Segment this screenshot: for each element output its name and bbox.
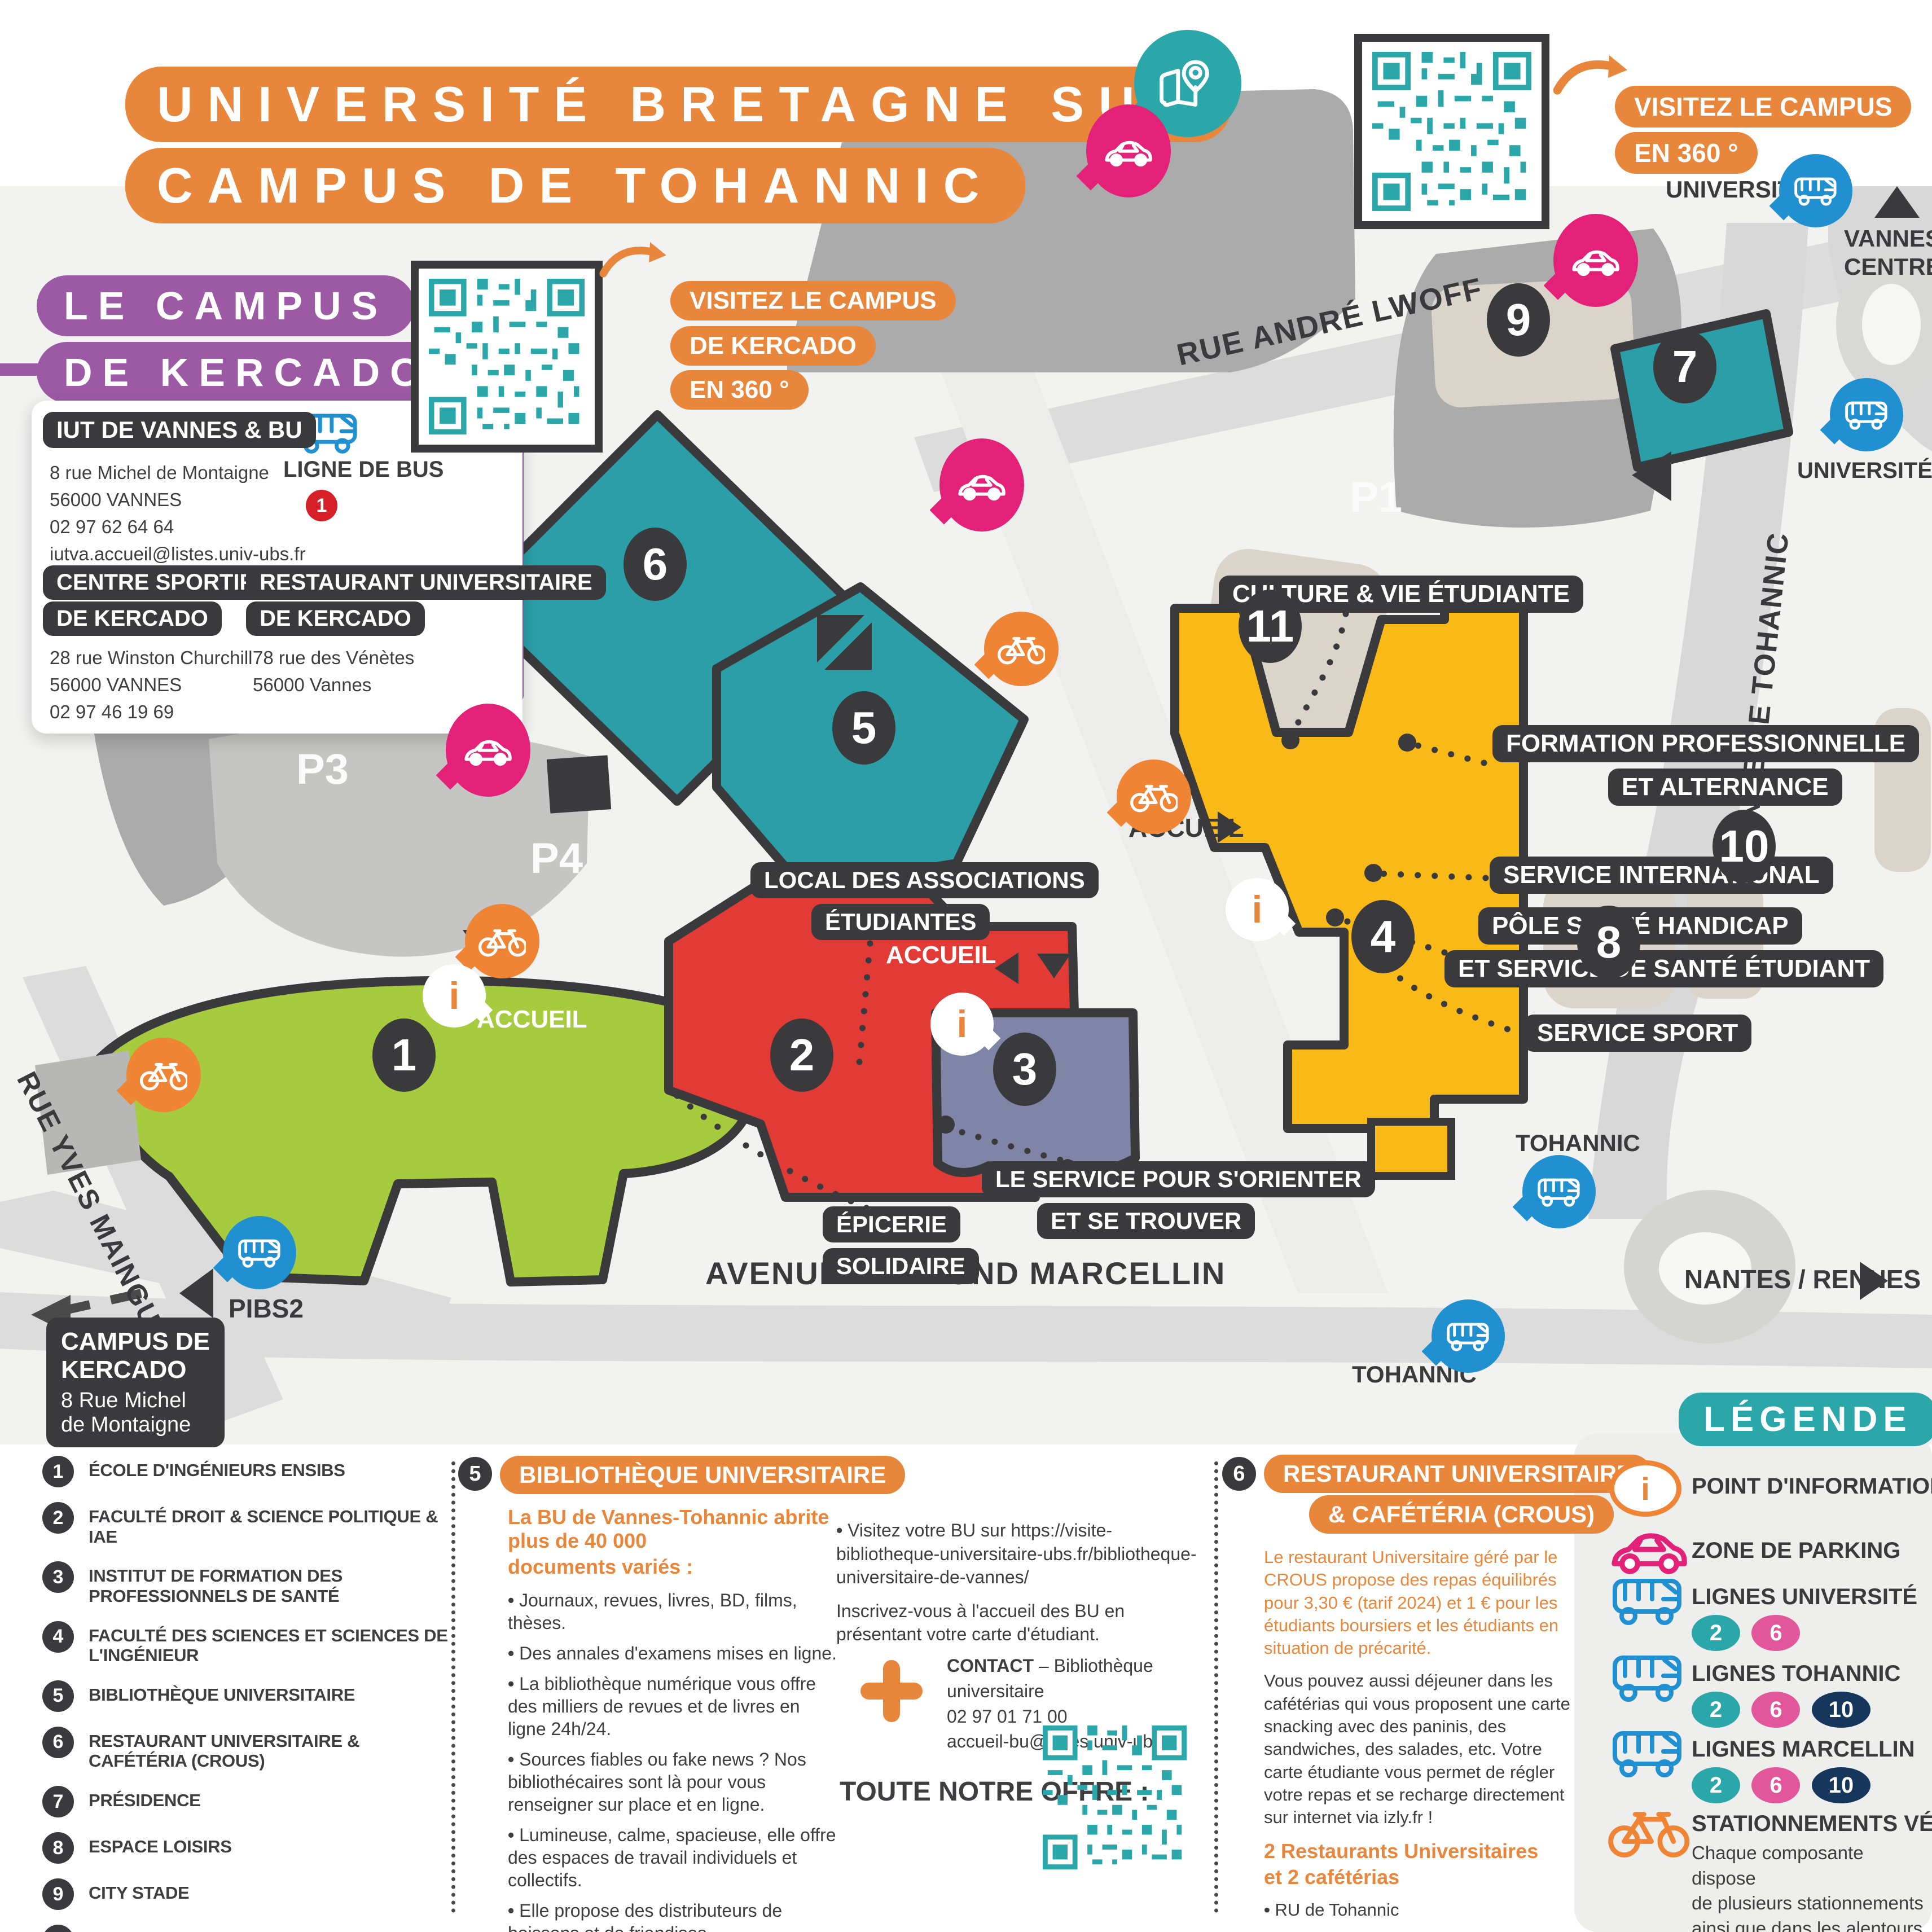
page-title-line2: CAMPUS DE TOHANNIC: [125, 148, 1025, 223]
ru-p1: Le restaurant Universitaire géré par le …: [1264, 1546, 1571, 1659]
parking-p3-label: P3: [296, 745, 349, 794]
bus-line-1-badge: 1: [306, 490, 337, 521]
bike-icon: [478, 925, 526, 958]
bus-icon: [238, 1237, 282, 1268]
bike-parking-bubble-2: [1117, 759, 1191, 834]
sport-center-address: 28 rue Winston Churchill 56000 VANNES 02…: [50, 644, 253, 726]
callout-epicerie-2: SOLIDAIRE: [823, 1248, 979, 1284]
callout-epicerie-1: ÉPICERIE: [823, 1206, 960, 1242]
bu-info-column: • Visitez votre BU sur https://visite-bi…: [836, 1519, 1197, 1657]
triangle-left-icon: [995, 952, 1018, 984]
qr-code-bu-offer: [1043, 1725, 1187, 1869]
callout-local-assoc-2: ÉTUDIANTES: [811, 904, 990, 940]
ru-p2: Vous pouvez aussi déjeuner dans les café…: [1264, 1670, 1571, 1829]
list-item: 9CITY STADE: [42, 1878, 460, 1910]
legend-bus-marc-label: LIGNES MARCELLIN: [1692, 1737, 1915, 1762]
bus-icon: [1446, 1321, 1490, 1351]
arrow-icon: [598, 237, 671, 288]
ru-kercado-badge-2: DE KERCADO: [246, 601, 425, 636]
bus-icon: [1611, 1575, 1684, 1625]
car-icon: [462, 734, 514, 767]
parking-p1-label: P1: [1350, 473, 1402, 522]
list-item: 4FACULTÉ DES SCIENCES ET SCIENCES DE L'I…: [42, 1621, 460, 1666]
list-item: 5BIBLIOTHÈQUE UNIVERSITAIRE: [42, 1680, 460, 1712]
kercado-visit-1: VISITEZ LE CAMPUS: [670, 281, 956, 320]
building-2-number: 2: [770, 1018, 833, 1092]
callout-orienter-1: LE SERVICE POUR S'ORIENTER: [982, 1161, 1375, 1197]
info-point-b2: i: [930, 993, 994, 1056]
triangle-right-icon: [1218, 811, 1241, 843]
bike-parking-bubble-1: [984, 612, 1059, 686]
triangle-down-icon: [1037, 954, 1071, 978]
qr-code-campus-360: [1354, 34, 1549, 229]
legend-bus-toh-label: LIGNES TOHANNIC: [1692, 1661, 1900, 1687]
kercado-visit-3: EN 360 °: [670, 370, 809, 410]
parking-p4-label: P4: [530, 834, 583, 883]
list-item: 3INSTITUT DE FORMATION DES PROFESSIONNEL…: [42, 1561, 460, 1606]
callout-international: SERVICE INTERNATIONAL: [1490, 857, 1833, 894]
parking-bubble-p3: [446, 704, 530, 797]
bus-icon: [1611, 1728, 1684, 1777]
bus-stop-bubble-universite-right: [1830, 378, 1903, 451]
accueil-label-b1: ACCUEIL: [477, 1005, 587, 1034]
legend-info-icon: i: [1609, 1460, 1681, 1517]
campus-kercado-box: CAMPUS DE KERCADO 8 Rue Michel de Montai…: [46, 1318, 225, 1447]
bu-register: Inscrivez-vous à l'accueil des BU en pré…: [836, 1600, 1197, 1646]
iut-address: 8 rue Michel de Montaigne 56000 VANNES 0…: [50, 459, 306, 567]
bu-section-body: La BU de Vannes-Tohannic abrite plus de …: [508, 1505, 841, 1932]
legend-velos-label: STATIONNEMENTS VÉLOS: [1692, 1811, 1932, 1837]
bike-icon: [140, 1059, 187, 1091]
legend-velos-note: Chaque composante dispose de plusieurs s…: [1692, 1841, 1932, 1932]
visit-360-label-1: VISITEZ LE CAMPUS: [1615, 86, 1911, 128]
campus-map-poster: UNIVERSITÉ BRETAGNE SUD CAMPUS DE TOHANN…: [0, 0, 1932, 1932]
stop-pibs2: PIBS2: [229, 1293, 304, 1324]
callout-orienter-2: ET SE TROUVER: [1037, 1203, 1255, 1239]
parking-bubble-center: [939, 438, 1024, 532]
ru-kercado-badge-1: RESTAURANT UNIVERSITAIRE: [246, 565, 606, 600]
bus-stop-bubble-tohannic-1: [1522, 1155, 1596, 1228]
page-title-line1: UNIVERSITÉ BRETAGNE SUD: [125, 67, 1231, 142]
building-5-number: 5: [832, 691, 895, 765]
bike-icon: [1130, 780, 1178, 813]
car-icon: [956, 469, 1008, 502]
kercado-visit-2: DE KERCADO: [670, 326, 876, 366]
callout-local-assoc-1: LOCAL DES ASSOCIATIONS: [750, 862, 1099, 898]
car-icon: [1103, 135, 1154, 168]
info-point-b1: i: [423, 964, 486, 1028]
bu-bullets: Journaux, revues, livres, BD, films, thè…: [508, 1589, 841, 1932]
bu-section-number: 5: [458, 1457, 492, 1491]
legend-title: LÉGENDE: [1679, 1393, 1932, 1446]
building-4-number: 4: [1351, 900, 1415, 973]
list-item: 7PRÉSIDENCE: [42, 1786, 460, 1817]
ru-section-title-1: RESTAURANT UNIVERSITAIRE: [1264, 1455, 1652, 1493]
building-3-number: 3: [993, 1033, 1056, 1106]
bu-intro-1: La BU de Vannes-Tohannic abrite plus de …: [508, 1505, 841, 1553]
car-icon: [1607, 1523, 1692, 1575]
sport-center-badge-2: DE KERCADO: [43, 601, 222, 636]
car-icon: [1570, 244, 1622, 277]
bike-parking-bubble-3: [465, 904, 539, 978]
arrow-icon: [1553, 50, 1632, 106]
info-point-b4: i: [1226, 878, 1289, 941]
vannes-centre-label: VANNES CENTRE: [1844, 225, 1929, 282]
building-11-number: 11: [1239, 590, 1302, 663]
legend-info-label: POINT D'INFORMATIONS: [1692, 1474, 1932, 1499]
bike-parking-bubble-4: [126, 1038, 201, 1112]
bike-icon: [1605, 1804, 1690, 1859]
kercado-badge-line2: DE KERCADO: [37, 342, 458, 403]
bu-intro-2: documents variés :: [508, 1555, 841, 1579]
bus-stop-bubble-tohannic-2: [1432, 1299, 1505, 1373]
building-7-number: 7: [1653, 330, 1716, 403]
bu-section-title: BIBLIOTHÈQUE UNIVERSITAIRE: [500, 1456, 905, 1494]
map-pin-icon: [1157, 58, 1219, 108]
bus-icon: [1794, 175, 1838, 206]
callout-sante-2: ET SERVICE DE SANTÉ ÉTUDIANT: [1444, 950, 1883, 987]
buildings-list: 1ÉCOLE D'INGÉNIEURS ENSIBS 2FACULTÉ DROI…: [42, 1456, 460, 1932]
ru-bullets: RU de Tohannic Cafétéria de Tohannic RU …: [1264, 1899, 1571, 1932]
stop-universite-right: UNIVERSITÉ: [1797, 458, 1932, 484]
plus-icon: [860, 1660, 923, 1722]
iut-title-badge: IUT DE VANNES & BU: [43, 412, 316, 448]
sport-center-badge-1: CENTRE SPORTIF: [43, 565, 267, 600]
visit-360-label-2: EN 360 °: [1615, 132, 1758, 174]
bus-icon: [1611, 1652, 1684, 1702]
building-9-number: 9: [1487, 283, 1550, 357]
list-item: 10JARDIN DE TOHANNIC: [42, 1925, 460, 1932]
bus-stop-bubble-universite-top: [1779, 154, 1852, 227]
legend-bus-univ-badges: 2 6: [1692, 1615, 1809, 1651]
kercado-badge-line1: LE CAMPUS: [37, 275, 415, 336]
ru-section-number: 6: [1222, 1457, 1256, 1491]
bike-icon: [998, 633, 1045, 665]
list-item: 8ESPACE LOISIRS: [42, 1832, 460, 1864]
triangle-up-icon: [1874, 186, 1920, 218]
bus-stop-bubble-pibs2: [223, 1216, 296, 1289]
list-item: 1ÉCOLE D'INGÉNIEURS ENSIBS: [42, 1456, 460, 1487]
legend-bus-marc-badges: 2 6 10: [1692, 1767, 1880, 1803]
callout-service-sport: SERVICE SPORT: [1523, 1015, 1751, 1052]
accueil-label-b2: ACCUEIL: [886, 941, 996, 969]
bus-line-label: LIGNE DE BUS: [283, 457, 444, 482]
parking-bubble-p1: [1553, 214, 1638, 307]
building-1-number: 1: [372, 1018, 436, 1092]
legend-bus-univ-label: LIGNES UNIVERSITÉ: [1692, 1584, 1917, 1610]
callout-formation-2: ET ALTERNANCE: [1608, 769, 1842, 806]
building-8-number: 8: [1577, 906, 1640, 979]
legend-parking-label: ZONE DE PARKING: [1692, 1538, 1900, 1564]
list-item: 2FACULTÉ DROIT & SCIENCE POLITIQUE & IAE: [42, 1502, 460, 1547]
qr-code-kercado-360: [411, 261, 603, 453]
contact-label: CONTACT: [947, 1656, 1034, 1676]
parking-bubble-p2: [1086, 104, 1171, 197]
building-6-number: 6: [623, 528, 687, 601]
ru-section-title-2: & CAFÉTÉRIA (CROUS): [1309, 1495, 1614, 1534]
stop-tohannic-1: TOHANNIC: [1516, 1130, 1640, 1157]
bus-icon: [1537, 1176, 1581, 1207]
bus-icon: [1845, 399, 1889, 430]
callout-formation-1: FORMATION PROFESSIONNELLE: [1492, 725, 1919, 762]
building-10-number: 10: [1713, 810, 1776, 883]
triangle-right-icon: [1860, 1262, 1888, 1300]
list-item: 6RESTAURANT UNIVERSITAIRE & CAFÉTÉRIA (C…: [42, 1727, 460, 1771]
bu-visit-url: • Visitez votre BU sur https://visite-bi…: [836, 1519, 1197, 1589]
ru-section-body: Le restaurant Universitaire géré par le …: [1264, 1546, 1571, 1932]
ru-kercado-address: 78 rue des Vénètes 56000 Vannes: [253, 644, 414, 699]
legend-bus-toh-badges: 2 6 10: [1692, 1692, 1880, 1728]
